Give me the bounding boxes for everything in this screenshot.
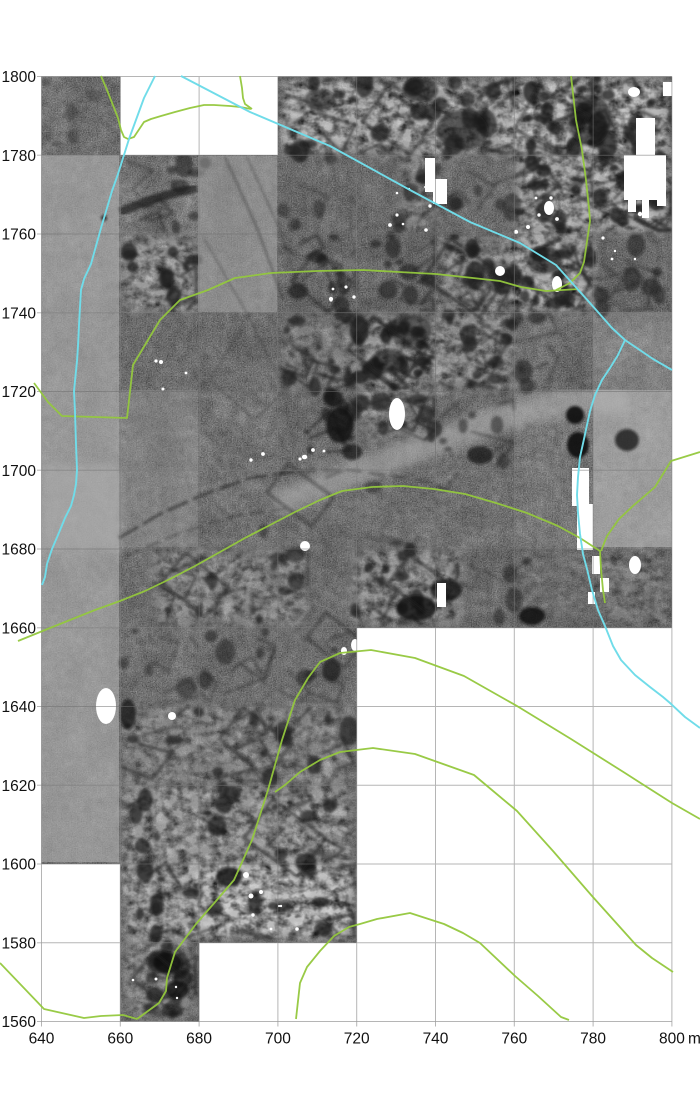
svg-text:1700: 1700 bbox=[2, 463, 37, 480]
svg-text:1560: 1560 bbox=[2, 1014, 37, 1031]
svg-text:720: 720 bbox=[344, 1031, 370, 1048]
svg-text:800: 800 bbox=[659, 1031, 685, 1048]
svg-text:780: 780 bbox=[580, 1031, 606, 1048]
svg-text:1760: 1760 bbox=[2, 227, 37, 244]
svg-text:680: 680 bbox=[186, 1031, 212, 1048]
svg-text:1640: 1640 bbox=[2, 699, 37, 716]
svg-text:700: 700 bbox=[265, 1031, 291, 1048]
svg-text:1800: 1800 bbox=[2, 69, 37, 86]
svg-text:760: 760 bbox=[501, 1031, 527, 1048]
svg-text:640: 640 bbox=[29, 1031, 55, 1048]
svg-text:1620: 1620 bbox=[2, 778, 37, 795]
svg-text:1680: 1680 bbox=[2, 542, 37, 559]
svg-text:740: 740 bbox=[423, 1031, 449, 1048]
svg-text:660: 660 bbox=[107, 1031, 133, 1048]
svg-text:1780: 1780 bbox=[2, 148, 37, 165]
svg-text:1580: 1580 bbox=[2, 935, 37, 952]
svg-text:1740: 1740 bbox=[2, 305, 37, 322]
svg-text:1660: 1660 bbox=[2, 620, 37, 637]
svg-text:1600: 1600 bbox=[2, 857, 37, 874]
svg-text:1720: 1720 bbox=[2, 384, 37, 401]
svg-text:m: m bbox=[688, 1031, 700, 1048]
